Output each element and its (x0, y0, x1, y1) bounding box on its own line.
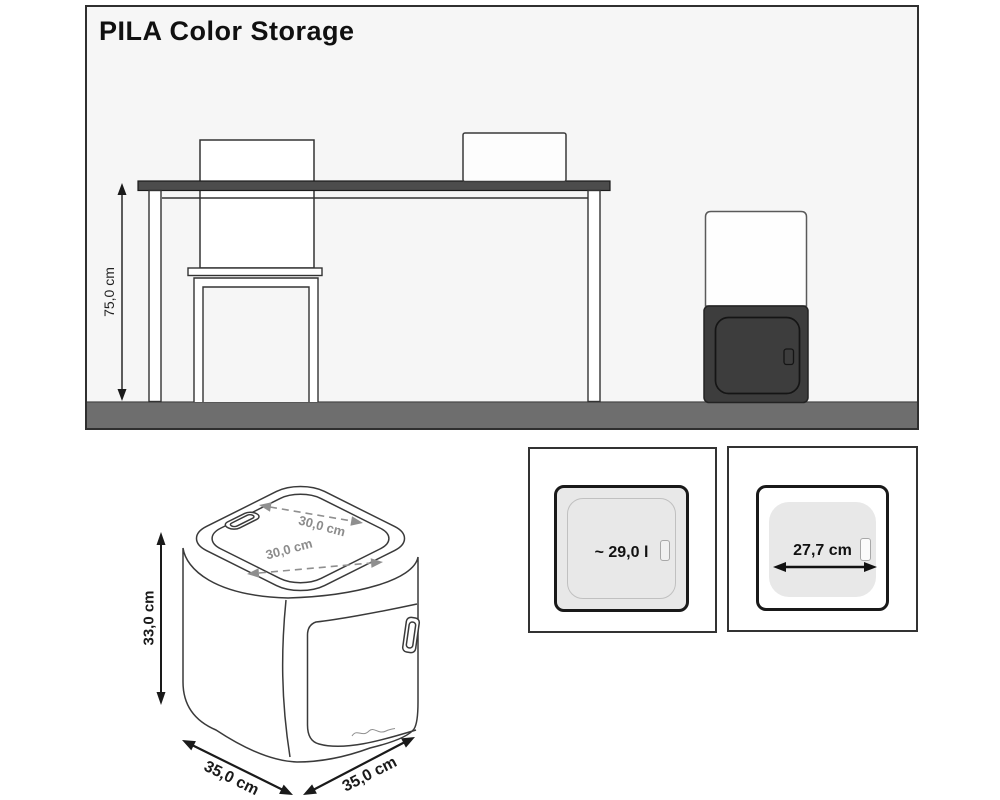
volume-detail-panel: ~ 29,0 l (528, 447, 717, 633)
floor (87, 402, 917, 428)
opening-lid-handle (860, 538, 871, 561)
chair-legs-inner (203, 287, 309, 402)
volume-lid-drawing: ~ 29,0 l (554, 485, 689, 612)
volume-lid-handle (660, 540, 670, 561)
pila-unit-door-handle (784, 349, 794, 365)
tabletop (138, 181, 610, 191)
chair-seat (188, 268, 322, 276)
table-height-label: 75,0 cm (101, 267, 117, 317)
opening-width-detail-panel: 27,7 cm (727, 446, 918, 632)
opening-lid-drawing: 27,7 cm (756, 485, 889, 611)
room-scene (86, 6, 918, 429)
table-leg-left (149, 191, 161, 402)
diagram-canvas (0, 0, 1000, 800)
chair-backrest (200, 140, 314, 268)
cube-height-label: 33,0 cm (141, 590, 158, 645)
iso-cube-drawing (157, 479, 420, 795)
cube-height-arrow (157, 532, 166, 705)
storage-box-on-table (463, 133, 566, 182)
page-title: PILA Color Storage (99, 16, 355, 47)
pila-spec-sheet: PILA Color Storage 75,0 cm 33,0 cm 30,0 … (0, 0, 1000, 800)
opening-width-arrow (759, 558, 886, 578)
pila-unit-white-box (706, 212, 807, 307)
table-leg-right (588, 191, 600, 402)
pila-unit (704, 212, 808, 403)
